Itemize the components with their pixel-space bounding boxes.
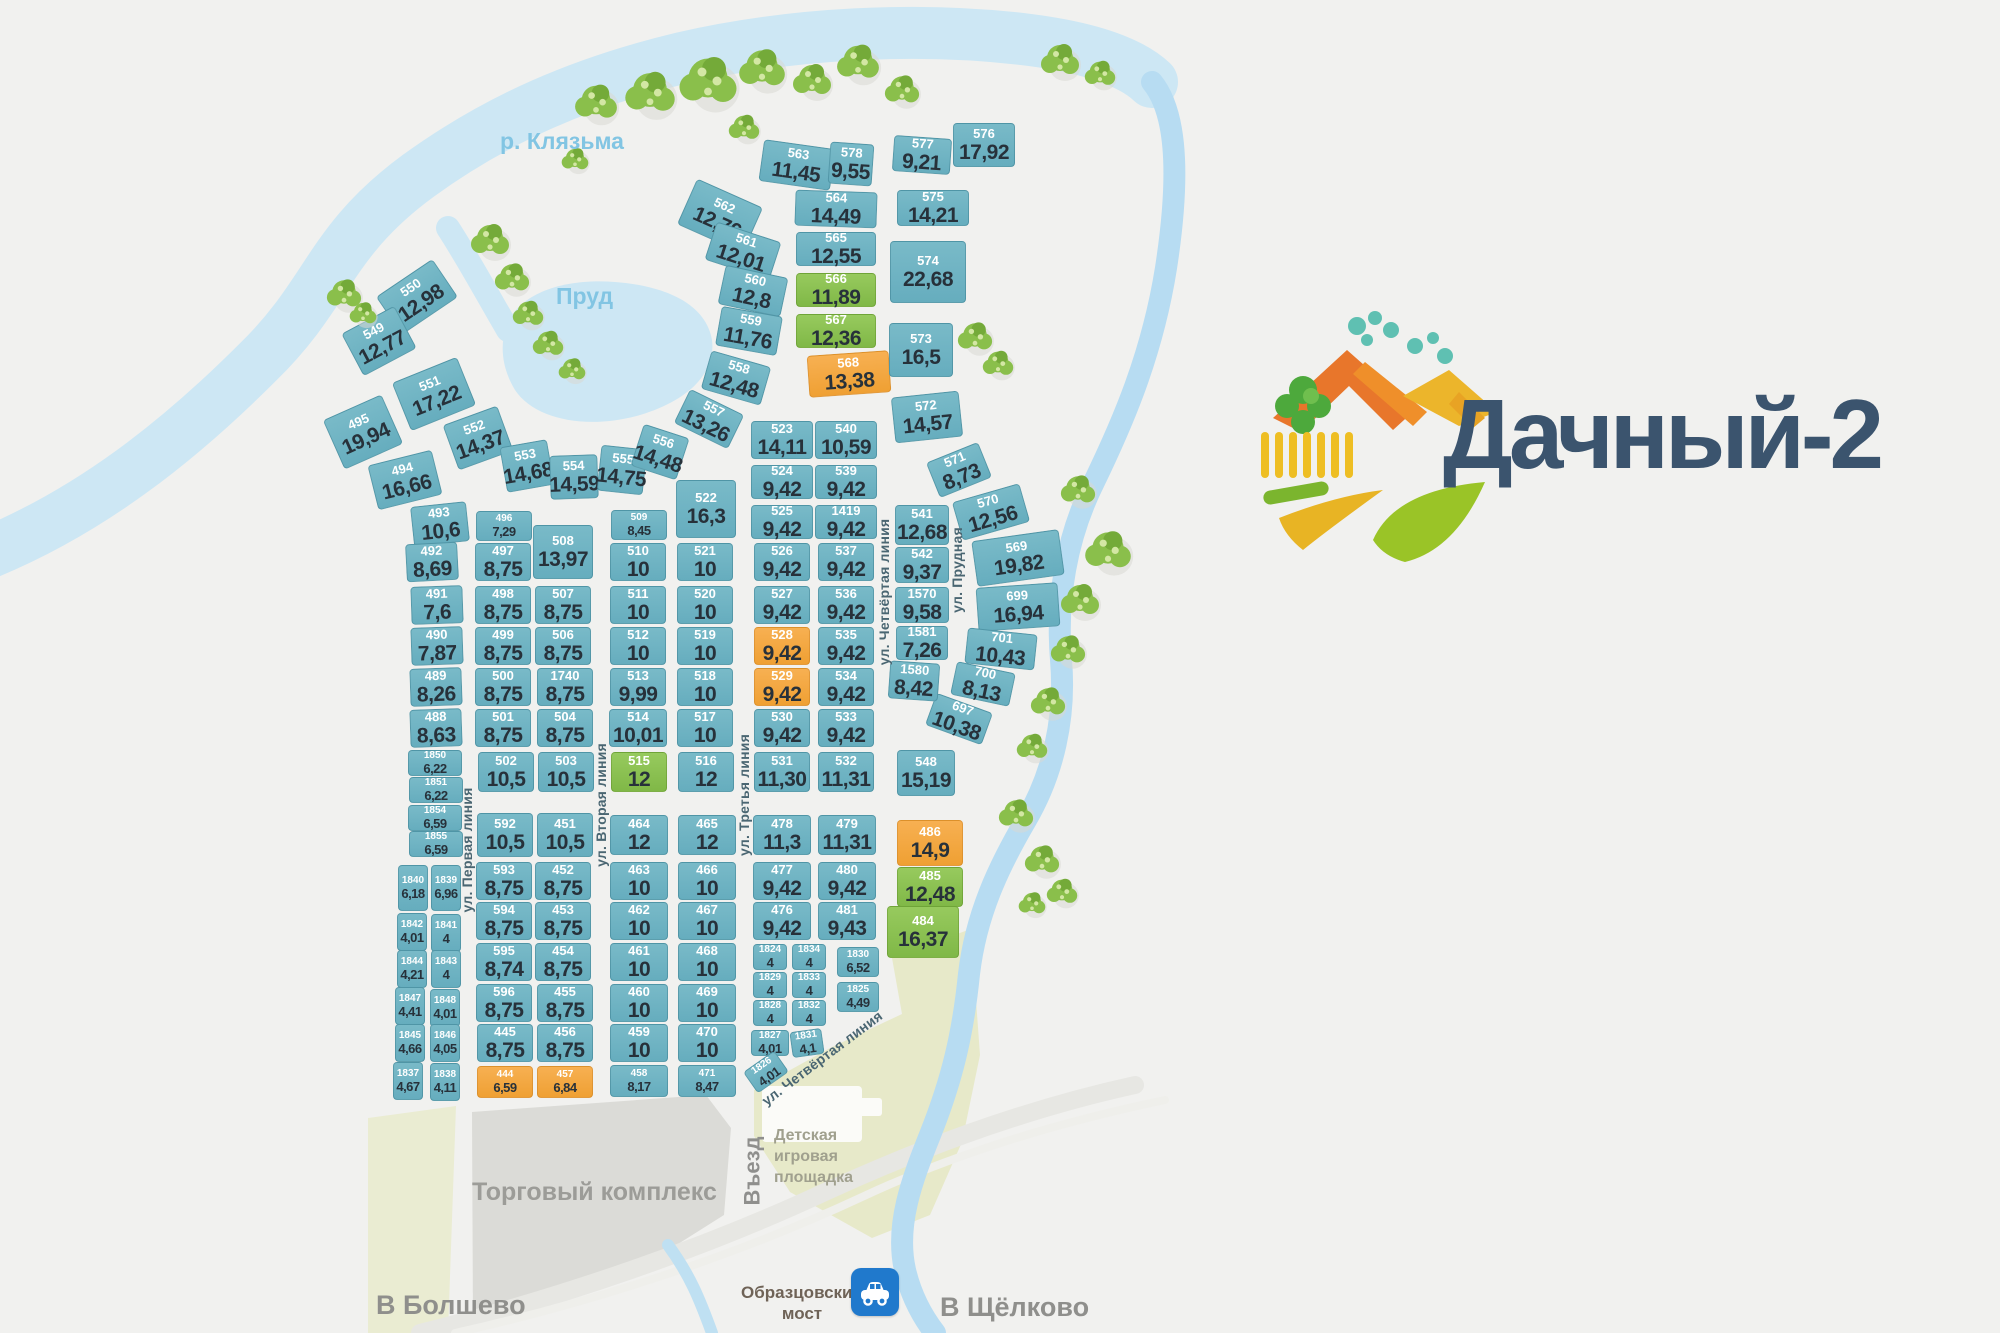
plot-area: 4 xyxy=(443,968,450,981)
plot-506[interactable]: 5068,75 xyxy=(535,627,591,665)
plot-area: 12 xyxy=(695,769,717,790)
plot-number: 529 xyxy=(771,669,793,682)
plot-494[interactable]: 49416,66 xyxy=(367,450,442,511)
plot-number: 457 xyxy=(557,1070,574,1080)
plot-area: 12,56 xyxy=(966,502,1020,536)
plot-area: 10 xyxy=(694,643,716,664)
plot-518[interactable]: 51810 xyxy=(677,668,733,706)
plot-number: 1832 xyxy=(798,1001,820,1011)
plot-1844[interactable]: 18444,21 xyxy=(397,950,427,988)
plot-536[interactable]: 5369,42 xyxy=(818,586,874,624)
plot-499[interactable]: 4998,75 xyxy=(475,627,531,665)
plot-511[interactable]: 51110 xyxy=(610,586,666,624)
plot-number: 530 xyxy=(771,710,793,723)
plot-area: 10,5 xyxy=(547,769,586,790)
plot-491[interactable]: 4917,6 xyxy=(410,585,463,625)
plots-layer: 56311,455789,555779,2157617,9256414,4957… xyxy=(0,0,2000,1333)
plot-area: 4,66 xyxy=(398,1042,421,1055)
plot-451[interactable]: 45110,5 xyxy=(537,813,593,857)
plot-521[interactable]: 52110 xyxy=(677,543,733,581)
plot-number: 506 xyxy=(552,628,574,641)
plot-525[interactable]: 5259,42 xyxy=(751,505,813,539)
plot-area: 4 xyxy=(806,984,813,997)
plot-number: 1843 xyxy=(435,957,457,967)
plot-number: 572 xyxy=(914,398,937,413)
plot-area: 9,58 xyxy=(903,602,942,623)
plot-498[interactable]: 4988,75 xyxy=(475,586,531,624)
plot-1839[interactable]: 18396,96 xyxy=(431,865,461,911)
plot-number: 509 xyxy=(631,513,648,523)
plot-area: 6,59 xyxy=(423,817,446,830)
plot-area: 11,76 xyxy=(722,324,774,353)
plot-area: 12 xyxy=(696,832,718,853)
plot-569[interactable]: 56919,82 xyxy=(971,529,1065,587)
plot-area: 9,42 xyxy=(763,684,802,705)
plot-number: 511 xyxy=(628,587,649,600)
plot-number: 453 xyxy=(552,903,574,916)
plot-496[interactable]: 4967,29 xyxy=(476,511,532,541)
plot-493[interactable]: 49310,6 xyxy=(410,501,470,547)
plot-568[interactable]: 56813,38 xyxy=(807,350,892,398)
plot-537[interactable]: 5379,42 xyxy=(818,543,874,581)
plot-area: 12,48 xyxy=(905,884,955,905)
plot-460[interactable]: 46010 xyxy=(610,984,668,1022)
plot-523[interactable]: 52314,11 xyxy=(751,421,813,459)
plot-1740[interactable]: 17408,75 xyxy=(537,668,593,706)
plot-number: 1581 xyxy=(908,625,937,638)
plot-number: 536 xyxy=(835,587,857,600)
plot-445[interactable]: 4458,75 xyxy=(477,1024,533,1062)
plot-number: 537 xyxy=(835,544,857,557)
plot-492[interactable]: 4928,69 xyxy=(405,542,459,583)
plot-area: 10 xyxy=(696,1000,718,1021)
plot-area: 10 xyxy=(696,1040,718,1061)
plot-number: 486 xyxy=(919,825,941,838)
plot-number: 701 xyxy=(991,630,1014,645)
plot-510[interactable]: 51010 xyxy=(610,543,666,581)
plot-452[interactable]: 4528,75 xyxy=(535,862,591,900)
plot-1845[interactable]: 18454,66 xyxy=(395,1024,425,1062)
street-label-4: ул. Прудная xyxy=(949,527,965,613)
plot-1832[interactable]: 18324 xyxy=(792,1000,826,1026)
plot-area: 8,26 xyxy=(416,683,456,705)
plot-number: 499 xyxy=(492,628,514,641)
plot-565[interactable]: 56512,55 xyxy=(796,232,876,266)
plot-number: 462 xyxy=(628,903,650,916)
plot-number: 458 xyxy=(631,1069,648,1079)
plot-number: 497 xyxy=(492,544,514,557)
plot-area: 8,75 xyxy=(484,602,523,623)
plot-number: 576 xyxy=(973,127,995,140)
plot-571[interactable]: 5718,73 xyxy=(926,442,992,498)
plot-number: 531 xyxy=(771,754,793,767)
plot-485[interactable]: 48512,48 xyxy=(897,867,963,907)
plot-number: 592 xyxy=(494,817,516,830)
plot-area: 4,05 xyxy=(433,1042,456,1055)
plot-558[interactable]: 55812,48 xyxy=(701,350,772,406)
plot-455[interactable]: 4558,75 xyxy=(537,984,593,1022)
street-label-3: ул. Четвёртая линия xyxy=(876,519,892,666)
plot-number: 513 xyxy=(627,669,649,682)
plot-456[interactable]: 4568,75 xyxy=(537,1024,593,1062)
plot-area: 8,47 xyxy=(695,1080,718,1093)
plot-number: 539 xyxy=(835,464,857,477)
plot-526[interactable]: 5269,42 xyxy=(754,543,810,581)
plot-number: 480 xyxy=(836,863,858,876)
plot-540[interactable]: 54010,59 xyxy=(815,421,877,459)
plot-area: 17,92 xyxy=(959,142,1009,163)
plot-501[interactable]: 5018,75 xyxy=(475,709,531,747)
plot-number: 455 xyxy=(554,985,576,998)
plot-1825[interactable]: 18254,49 xyxy=(837,982,879,1012)
plot-area: 8,75 xyxy=(485,918,524,939)
plot-1848[interactable]: 18484,01 xyxy=(430,989,460,1027)
plot-area: 9,37 xyxy=(903,562,942,583)
plot-area: 4 xyxy=(443,932,450,945)
car-sign-icon xyxy=(851,1268,899,1316)
plot-1833[interactable]: 18334 xyxy=(792,972,826,998)
plot-area: 11,31 xyxy=(822,769,871,790)
plot-553[interactable]: 55314,68 xyxy=(499,439,554,493)
plot-number: 469 xyxy=(696,985,718,998)
plot-number: 1845 xyxy=(399,1031,421,1041)
plot-1855[interactable]: 18556,59 xyxy=(409,831,463,857)
plot-number: 489 xyxy=(425,669,447,683)
plot-522[interactable]: 52216,3 xyxy=(676,480,736,538)
plot-592[interactable]: 59210,5 xyxy=(477,813,533,857)
plot-area: 8,69 xyxy=(412,558,452,581)
plot-470[interactable]: 47010 xyxy=(678,1024,736,1062)
plot-463[interactable]: 46310 xyxy=(610,862,668,900)
plot-1843[interactable]: 18434 xyxy=(431,950,461,988)
plot-481[interactable]: 4819,43 xyxy=(818,902,876,940)
plot-464[interactable]: 46412 xyxy=(610,815,668,855)
plot-459[interactable]: 45910 xyxy=(610,1024,668,1062)
plot-512[interactable]: 51210 xyxy=(610,627,666,665)
plot-490[interactable]: 4907,87 xyxy=(410,626,463,666)
plot-area: 17,22 xyxy=(410,382,464,420)
plot-number: 471 xyxy=(699,1069,716,1079)
plot-468[interactable]: 46810 xyxy=(678,943,736,981)
plot-458[interactable]: 4588,17 xyxy=(610,1065,668,1097)
plot-478[interactable]: 47811,3 xyxy=(753,815,811,855)
plot-542[interactable]: 5429,37 xyxy=(895,547,949,583)
plot-595[interactable]: 5958,74 xyxy=(476,943,532,981)
plot-574[interactable]: 57422,68 xyxy=(890,241,966,303)
plot-number: 516 xyxy=(695,754,717,767)
plot-444[interactable]: 4446,59 xyxy=(477,1066,533,1098)
plot-area: 9,42 xyxy=(763,878,802,899)
plot-number: 454 xyxy=(552,944,574,957)
plot-area: 14,37 xyxy=(453,427,507,464)
plot-1580[interactable]: 15808,42 xyxy=(888,660,941,701)
plot-area: 6,84 xyxy=(553,1081,576,1094)
plot-466[interactable]: 46610 xyxy=(678,862,736,900)
plot-508[interactable]: 50813,97 xyxy=(533,525,593,579)
plot-519[interactable]: 51910 xyxy=(677,627,733,665)
plot-1847[interactable]: 18474,41 xyxy=(395,987,425,1025)
plot-area: 11,31 xyxy=(823,832,872,853)
plot-1842[interactable]: 18424,01 xyxy=(397,913,427,951)
plot-area: 10 xyxy=(694,725,716,746)
plot-number: 500 xyxy=(492,669,514,682)
plot-520[interactable]: 52010 xyxy=(677,586,733,624)
plot-596[interactable]: 5968,75 xyxy=(476,984,532,1022)
plot-593[interactable]: 5938,75 xyxy=(476,862,532,900)
plot-area: 4 xyxy=(767,984,774,997)
plot-471[interactable]: 4718,47 xyxy=(678,1065,736,1097)
plot-594[interactable]: 5948,75 xyxy=(476,902,532,940)
plot-461[interactable]: 46110 xyxy=(610,943,668,981)
plot-area: 12,48 xyxy=(707,368,761,402)
plot-number: 1419 xyxy=(832,504,861,517)
plot-462[interactable]: 46210 xyxy=(610,902,668,940)
plot-484[interactable]: 48416,37 xyxy=(887,906,959,958)
plot-507[interactable]: 5078,75 xyxy=(535,586,591,624)
plot-number: 524 xyxy=(771,464,793,477)
plot-number: 519 xyxy=(694,628,716,641)
plot-area: 10 xyxy=(628,878,650,899)
plot-699[interactable]: 69916,94 xyxy=(976,582,1061,632)
plot-533[interactable]: 5339,42 xyxy=(818,709,874,747)
plot-465[interactable]: 46512 xyxy=(678,815,736,855)
plot-527[interactable]: 5279,42 xyxy=(754,586,810,624)
plot-area: 13,38 xyxy=(824,369,875,393)
plot-number: 493 xyxy=(427,505,450,520)
plot-area: 9,42 xyxy=(827,559,866,580)
car-glyph xyxy=(857,1277,893,1307)
plot-number: 1840 xyxy=(402,876,424,886)
mall-label: Торговый комплекс xyxy=(472,1178,717,1207)
plot-531[interactable]: 53111,30 xyxy=(754,752,810,792)
plot-1850[interactable]: 18506,22 xyxy=(408,750,462,776)
plot-area: 11,89 xyxy=(812,287,861,308)
plot-495[interactable]: 49519,94 xyxy=(323,394,403,469)
plot-area: 9,42 xyxy=(763,479,802,500)
plot-517[interactable]: 51710 xyxy=(677,709,733,747)
plot-577[interactable]: 5779,21 xyxy=(892,135,952,175)
plot-number: 699 xyxy=(1006,588,1029,602)
plot-number: 1834 xyxy=(798,945,820,955)
plot-area: 8,75 xyxy=(484,559,523,580)
plot-area: 9,42 xyxy=(827,519,866,540)
plot-area: 12,68 xyxy=(897,522,947,543)
plot-area: 10 xyxy=(694,684,716,705)
plot-number: 484 xyxy=(912,914,934,927)
plot-541[interactable]: 54112,68 xyxy=(895,505,949,545)
plot-number: 574 xyxy=(917,254,939,267)
plot-area: 9,42 xyxy=(827,684,866,705)
plot-572[interactable]: 57214,57 xyxy=(891,391,963,444)
plot-480[interactable]: 4809,42 xyxy=(818,862,876,900)
masterplan-map: 56311,455789,555779,2157617,9256414,4957… xyxy=(0,0,2000,1333)
plot-516[interactable]: 51612 xyxy=(678,752,734,792)
plot-number: 577 xyxy=(912,136,935,150)
plot-number: 1830 xyxy=(847,950,869,960)
plot-area: 22,68 xyxy=(903,269,953,290)
plot-number: 596 xyxy=(493,985,515,998)
plot-1829[interactable]: 18294 xyxy=(753,972,787,998)
plot-area: 6,18 xyxy=(401,887,424,900)
plot-1854[interactable]: 18546,59 xyxy=(408,805,462,831)
plot-1837[interactable]: 18374,67 xyxy=(393,1062,423,1100)
plot-509[interactable]: 5098,45 xyxy=(611,510,667,540)
plot-532[interactable]: 53211,31 xyxy=(818,752,874,792)
plot-453[interactable]: 4538,75 xyxy=(535,902,591,940)
plot-1581[interactable]: 15817,26 xyxy=(896,626,948,660)
plot-1570[interactable]: 15709,58 xyxy=(895,587,949,623)
plot-469[interactable]: 46910 xyxy=(678,984,736,1022)
plot-number: 464 xyxy=(628,817,650,830)
plot-number: 517 xyxy=(694,710,716,723)
plot-535[interactable]: 5359,42 xyxy=(818,627,874,665)
plot-area: 7,29 xyxy=(492,525,515,538)
plot-573[interactable]: 57316,5 xyxy=(889,323,953,377)
plot-554[interactable]: 55414,59 xyxy=(549,454,599,500)
plot-number: 459 xyxy=(628,1025,650,1038)
plot-area: 9,42 xyxy=(827,643,866,664)
entrance-label: Въезд xyxy=(740,1136,766,1205)
plot-502[interactable]: 50210,5 xyxy=(478,752,534,792)
plot-number: 490 xyxy=(426,628,448,642)
plot-488[interactable]: 4888,63 xyxy=(409,708,462,748)
plot-number: 567 xyxy=(825,313,847,326)
plot-1834[interactable]: 18344 xyxy=(792,944,826,970)
plot-area: 8,75 xyxy=(546,1000,585,1021)
plot-area: 12,55 xyxy=(811,246,861,267)
plot-457[interactable]: 4576,84 xyxy=(537,1066,593,1098)
street-label-1: ул. Вторая линия xyxy=(593,743,609,867)
plot-number: 465 xyxy=(696,817,718,830)
plot-number: 507 xyxy=(552,587,574,600)
plot-500[interactable]: 5008,75 xyxy=(475,668,531,706)
plot-578[interactable]: 5789,55 xyxy=(828,142,875,187)
plot-number: 1839 xyxy=(435,876,457,886)
plot-479[interactable]: 47911,31 xyxy=(818,815,876,855)
plot-number: 1828 xyxy=(759,1001,781,1011)
plot-1846[interactable]: 18464,05 xyxy=(430,1024,460,1062)
plot-529[interactable]: 5299,42 xyxy=(754,668,810,706)
plot-area: 8,75 xyxy=(544,918,583,939)
plot-area: 8,74 xyxy=(485,959,524,980)
plot-477[interactable]: 4779,42 xyxy=(753,862,811,900)
plot-area: 6,59 xyxy=(493,1081,516,1094)
plot-number: 1841 xyxy=(435,921,457,931)
plot-564[interactable]: 56414,49 xyxy=(794,190,877,229)
plot-number: 518 xyxy=(694,669,716,682)
plot-534[interactable]: 5349,42 xyxy=(818,668,874,706)
plot-area: 6,22 xyxy=(423,762,446,775)
plot-528[interactable]: 5289,42 xyxy=(754,627,810,665)
plot-524[interactable]: 5249,42 xyxy=(751,465,813,499)
plot-area: 10 xyxy=(696,878,718,899)
plot-476[interactable]: 4769,42 xyxy=(753,902,811,940)
plot-566[interactable]: 56611,89 xyxy=(796,273,876,307)
plot-number: 468 xyxy=(696,944,718,957)
plot-number: 1570 xyxy=(908,587,937,600)
plot-area: 6,22 xyxy=(424,789,447,802)
plot-area: 14,11 xyxy=(758,437,807,458)
plot-1830[interactable]: 18306,52 xyxy=(837,947,879,977)
plot-530[interactable]: 5309,42 xyxy=(754,709,810,747)
plot-number: 485 xyxy=(919,869,941,882)
plot-number: 1833 xyxy=(798,973,820,983)
plot-number: 595 xyxy=(493,944,515,957)
plot-number: 491 xyxy=(426,587,448,601)
plot-1824[interactable]: 18244 xyxy=(753,944,787,970)
plot-area: 14,59 xyxy=(549,473,600,496)
plot-number: 514 xyxy=(627,710,649,723)
plot-515[interactable]: 51512 xyxy=(611,752,667,792)
plot-1851[interactable]: 18516,22 xyxy=(409,777,463,803)
plot-number: 593 xyxy=(493,863,515,876)
plot-567[interactable]: 56712,36 xyxy=(796,314,876,348)
plot-number: 1829 xyxy=(759,973,781,983)
plot-area: 10,5 xyxy=(486,832,525,853)
plot-504[interactable]: 5048,75 xyxy=(537,709,593,747)
plot-area: 8,75 xyxy=(546,725,585,746)
plot-1828[interactable]: 18284 xyxy=(753,1000,787,1026)
plot-486[interactable]: 48614,9 xyxy=(897,820,963,866)
plot-area: 8,75 xyxy=(485,1000,524,1021)
plot-number: 504 xyxy=(554,710,576,723)
plot-513[interactable]: 5139,99 xyxy=(610,668,666,706)
plot-576[interactable]: 57617,92 xyxy=(953,123,1015,167)
plot-number: 1851 xyxy=(425,778,447,788)
plot-number: 541 xyxy=(911,507,933,520)
plot-area: 8,75 xyxy=(486,1040,525,1061)
plot-514[interactable]: 51410,01 xyxy=(609,709,667,747)
plot-area: 10 xyxy=(628,959,650,980)
plot-1838[interactable]: 18384,11 xyxy=(430,1063,460,1101)
plot-1419[interactable]: 14199,42 xyxy=(815,505,877,539)
plot-number: 568 xyxy=(837,355,860,369)
plot-area: 14,68 xyxy=(502,459,555,488)
plot-454[interactable]: 4548,75 xyxy=(535,943,591,981)
plot-1840[interactable]: 18406,18 xyxy=(398,865,428,911)
plot-number: 492 xyxy=(420,543,442,557)
plot-area: 9,42 xyxy=(827,725,866,746)
plot-467[interactable]: 46710 xyxy=(678,902,736,940)
plot-area: 6,52 xyxy=(846,961,869,974)
plot-area: 8,42 xyxy=(893,677,933,701)
plot-area: 9,42 xyxy=(827,479,866,500)
plot-area: 7,87 xyxy=(417,642,457,664)
plot-number: 527 xyxy=(771,587,793,600)
plot-area: 8,75 xyxy=(544,959,583,980)
plot-575[interactable]: 57514,21 xyxy=(897,190,969,226)
plot-563[interactable]: 56311,45 xyxy=(758,139,835,191)
plot-number: 467 xyxy=(696,903,718,916)
plot-539[interactable]: 5399,42 xyxy=(815,465,877,499)
plot-area: 16,37 xyxy=(898,929,948,950)
plot-area: 16,3 xyxy=(687,506,726,527)
plot-503[interactable]: 50310,5 xyxy=(538,752,594,792)
river-label: р. Клязьма xyxy=(500,128,624,155)
plot-1841[interactable]: 18414 xyxy=(431,914,461,952)
plot-489[interactable]: 4898,26 xyxy=(409,667,462,707)
plot-number: 521 xyxy=(694,544,716,557)
plot-548[interactable]: 54815,19 xyxy=(897,750,955,796)
plot-number: 444 xyxy=(497,1070,514,1080)
plot-area: 7,26 xyxy=(903,640,942,661)
plot-area: 4,49 xyxy=(846,996,869,1009)
plot-area: 9,55 xyxy=(830,160,870,184)
plot-area: 4 xyxy=(806,956,813,969)
plot-number: 565 xyxy=(825,231,847,244)
plot-number: 578 xyxy=(841,145,864,159)
plot-497[interactable]: 4978,75 xyxy=(475,543,531,581)
